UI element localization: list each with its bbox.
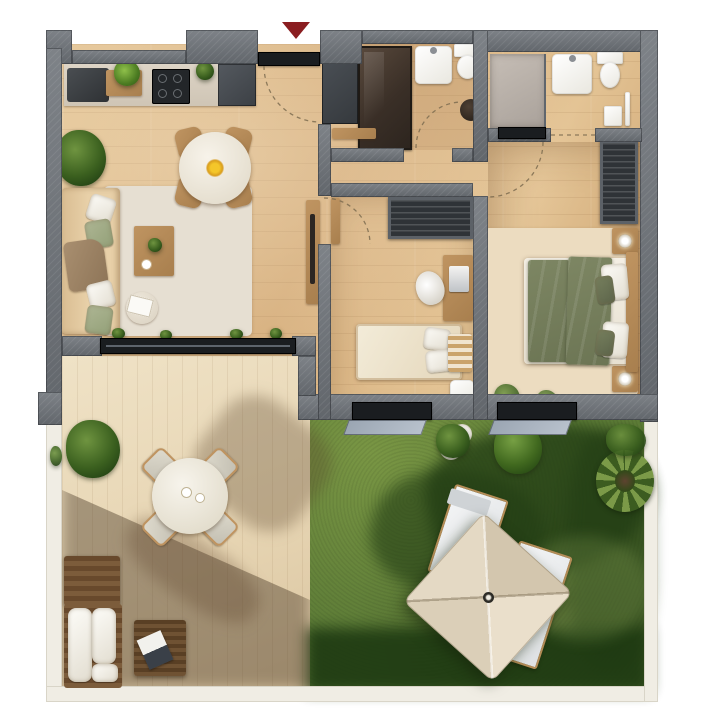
kids-door-arc (324, 198, 370, 244)
door-swing-arcs (0, 0, 720, 720)
bath2-door-arc (488, 142, 543, 197)
entry-door-arc (264, 66, 320, 122)
bath1-door-arc (416, 102, 462, 148)
floor-plan-render (0, 0, 720, 720)
